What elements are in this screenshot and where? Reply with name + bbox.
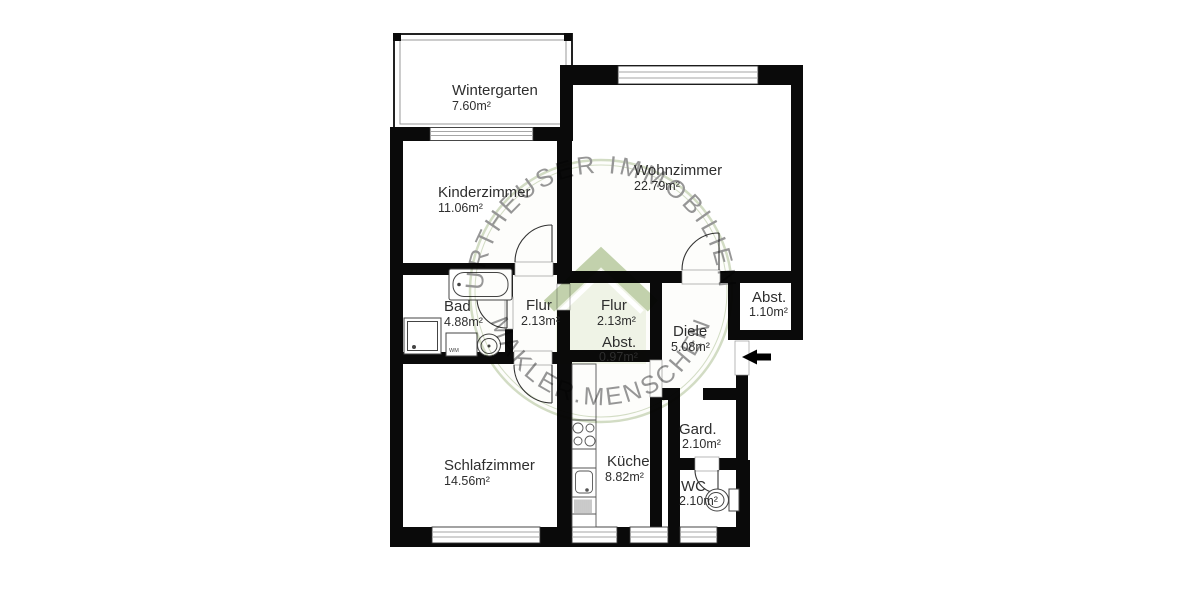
label-kueche-name: Küche (607, 453, 650, 470)
floorplan-canvas: WM (0, 0, 1200, 600)
label-garderobe-name: Gard. (679, 421, 717, 438)
label-wintergarten-area: 7.60m² (452, 99, 491, 113)
label-bad-area: 4.88m² (444, 315, 483, 329)
label-diele-name: Diele (673, 323, 707, 340)
label-flur-mitte-area: 2.13m² (597, 314, 636, 328)
label-schlafzimmer-name: Schlafzimmer (444, 457, 535, 474)
window-wohnzimmer-top (618, 66, 758, 84)
label-wohnzimmer-area: 22.79m² (634, 179, 680, 193)
washing-machine-label: WM (449, 348, 459, 354)
label-wintergarten-name: Wintergarten (452, 82, 538, 99)
label-abst-mitte-area: 0.97m² (599, 350, 638, 364)
label-flur-mitte-name: Flur (601, 297, 627, 314)
label-wc-area: 2.10m² (679, 494, 718, 508)
label-wc-name: WC (681, 478, 706, 495)
label-kinderzimmer-area: 11.06m² (438, 201, 483, 215)
window-kueche-bottom-1 (572, 527, 617, 543)
shower-icon (404, 318, 441, 354)
opening-wc (695, 457, 719, 471)
label-flur-links-area: 2.13m² (521, 314, 560, 328)
label-kueche-area: 8.82m² (605, 470, 644, 484)
label-flur-links-name: Flur (526, 297, 552, 314)
window-wc-bottom (680, 527, 717, 543)
label-diele-area: 5.08m² (671, 340, 710, 354)
label-kinderzimmer-name: Kinderzimmer (438, 184, 531, 201)
window-wintergarten-kinderzimmer (430, 128, 533, 141)
label-schlafzimmer-area: 14.56m² (444, 474, 490, 488)
label-abst-eingang-name: Abst. (752, 289, 786, 306)
floorplan-svg: WM (0, 0, 1200, 600)
washing-machine-icon: WM (446, 333, 477, 356)
label-garderobe-area: 2.10m² (682, 437, 721, 451)
window-schlafzimmer-bottom (432, 527, 540, 543)
label-wohnzimmer-name: Wohnzimmer (634, 162, 722, 179)
label-bad-name: Bad (444, 298, 471, 315)
label-abst-eingang-area: 1.10m² (749, 305, 788, 319)
window-kueche-bottom-2 (630, 527, 668, 543)
label-abst-mitte-name: Abst. (602, 334, 636, 351)
